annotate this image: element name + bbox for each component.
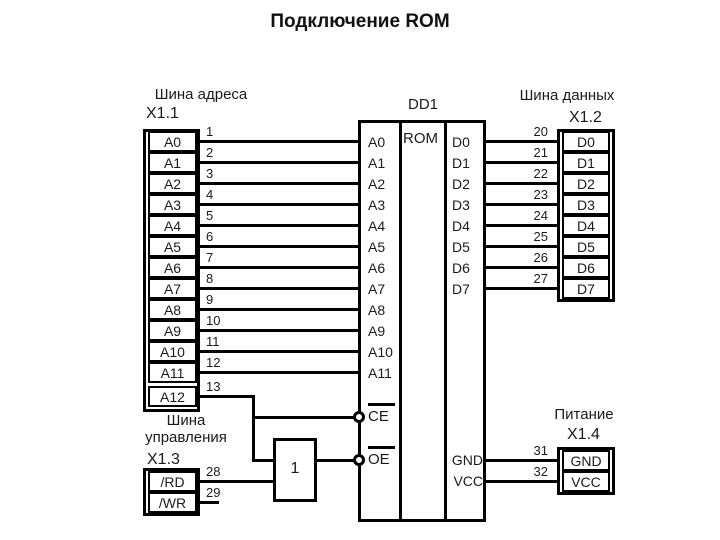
rom-connection-diagram: Подключение ROM Шина адреса X1.1 Шина да… [0, 0, 720, 540]
pin-number: 21 [518, 145, 548, 161]
chip-pin-label: D7 [452, 281, 486, 297]
connector-pin-cell: A2 [148, 173, 197, 194]
chip-pin-gnd: GND [436, 452, 483, 468]
connector-pin-cell: A3 [148, 194, 197, 215]
pin-number: 13 [206, 379, 232, 395]
connector-pin-cell: A10 [148, 341, 197, 362]
pin-number: 11 [206, 334, 232, 350]
connector-pin-cell: A12 [148, 386, 197, 407]
wire [252, 416, 355, 419]
data-bus-label: Шина данных [487, 87, 647, 104]
chip-pin-label: A10 [368, 344, 402, 360]
chip-pin-ce: CE [368, 409, 389, 425]
connector-pin-cell: /WR [148, 492, 197, 513]
wire [486, 287, 557, 290]
connector-pin-cell: D1 [562, 152, 610, 173]
connector-x1-4-label: X1.4 [567, 426, 600, 444]
chip-pin-label: D0 [452, 134, 486, 150]
pin-number: 8 [206, 271, 232, 287]
wire [200, 350, 358, 353]
chip-pin-label: A4 [368, 218, 402, 234]
chip-pin-label: A2 [368, 176, 402, 192]
pin-number: 10 [206, 313, 232, 329]
chip-pin-label: D6 [452, 260, 486, 276]
chip-pin-label: A6 [368, 260, 402, 276]
chip-pin-vcc: VCC [436, 473, 483, 489]
connector-pin-cell: D4 [562, 215, 610, 236]
pin-number: 29 [206, 485, 232, 501]
connector-pin-cell: D2 [562, 173, 610, 194]
pin-number: 28 [206, 464, 232, 480]
wire [200, 266, 358, 269]
connector-pin-cell: D0 [562, 131, 610, 152]
wire [486, 161, 557, 164]
wire [486, 140, 557, 143]
connector-pin-cell: D7 [562, 278, 610, 299]
pin-number: 25 [518, 229, 548, 245]
connector-pin-cell: A5 [148, 236, 197, 257]
address-bus-label: Шина адреса [121, 86, 281, 103]
chip-pin-label: A5 [368, 239, 402, 255]
oe-overline [368, 446, 395, 449]
connector-pin-cell: A0 [148, 131, 197, 152]
chip-pin-label: A11 [368, 365, 402, 381]
wire [200, 371, 358, 374]
wire [252, 459, 274, 462]
ce-overline [368, 403, 395, 406]
pin-number: 26 [518, 250, 548, 266]
connector-pin-cell: A6 [148, 257, 197, 278]
chip-designator: DD1 [399, 97, 447, 113]
connector-pin-cell: A11 [148, 362, 197, 383]
pin-number: 2 [206, 145, 232, 161]
connector-pin-cell: D3 [562, 194, 610, 215]
wire [486, 480, 557, 483]
wire [252, 395, 255, 462]
connector-pin-cell: A1 [148, 152, 197, 173]
wire [200, 308, 358, 311]
pin-number: 7 [206, 250, 232, 266]
wire [486, 245, 557, 248]
wire [486, 224, 557, 227]
pin-number: 20 [518, 124, 548, 140]
connector-pin-cell: D5 [562, 236, 610, 257]
pin-number: 22 [518, 166, 548, 182]
connector-pin-cell: A8 [148, 299, 197, 320]
chip-pin-label: A1 [368, 155, 402, 171]
chip-pin-label: D3 [452, 197, 486, 213]
pin-number: 4 [206, 187, 232, 203]
wire [200, 182, 358, 185]
wire [200, 329, 358, 332]
connector-pin-cell: A7 [148, 278, 197, 299]
chip-pin-label: D1 [452, 155, 486, 171]
wire [200, 161, 358, 164]
chip-pin-label: A7 [368, 281, 402, 297]
wire [200, 287, 358, 290]
slide-title: Подключение ROM [0, 11, 720, 33]
pin-number: 12 [206, 355, 232, 371]
connector-pin-cell: D6 [562, 257, 610, 278]
wire [200, 395, 255, 398]
pin-number: 31 [518, 443, 548, 459]
chip-pin-label: A3 [368, 197, 402, 213]
wire [486, 459, 557, 462]
connector-x1-2-label: X1.2 [569, 109, 602, 127]
wire [200, 480, 273, 483]
control-bus-label: Шина управления [131, 412, 241, 446]
wire [200, 224, 358, 227]
pin-number: 24 [518, 208, 548, 224]
wire [200, 203, 358, 206]
chip-pin-label: A9 [368, 323, 402, 339]
chip-pin-label: D2 [452, 176, 486, 192]
pin-number: 23 [518, 187, 548, 203]
connector-pin-cell: /RD [148, 471, 197, 492]
chip-pin-label: D5 [452, 239, 486, 255]
wire [486, 182, 557, 185]
chip-type-label: ROM [403, 131, 438, 147]
chip-pin-oe: OE [368, 452, 390, 468]
connector-pin-cell: A4 [148, 215, 197, 236]
wire [486, 203, 557, 206]
wire [317, 459, 354, 462]
wire [200, 245, 358, 248]
connector-pin-cell: A9 [148, 320, 197, 341]
pin-number: 6 [206, 229, 232, 245]
connector-x1-3-label: X1.3 [147, 451, 180, 469]
or-gate-label: 1 [273, 460, 317, 478]
oe-inversion-circle [353, 454, 365, 466]
chip-pin-label: A8 [368, 302, 402, 318]
pin-number: 5 [206, 208, 232, 224]
pin-number: 1 [206, 124, 232, 140]
chip-pin-label: D4 [452, 218, 486, 234]
pin-number: 32 [518, 464, 548, 480]
wire [486, 266, 557, 269]
connector-x1-1-label: X1.1 [146, 105, 179, 123]
ce-inversion-circle [353, 411, 365, 423]
pin-number: 3 [206, 166, 232, 182]
chip-pin-label: A0 [368, 134, 402, 150]
pin-number: 9 [206, 292, 232, 308]
wire [200, 501, 219, 504]
wire [200, 140, 358, 143]
pin-number: 27 [518, 271, 548, 287]
power-label: Питание [524, 406, 644, 423]
connector-pin-cell: VCC [562, 471, 610, 492]
connector-pin-cell: GND [562, 450, 610, 471]
